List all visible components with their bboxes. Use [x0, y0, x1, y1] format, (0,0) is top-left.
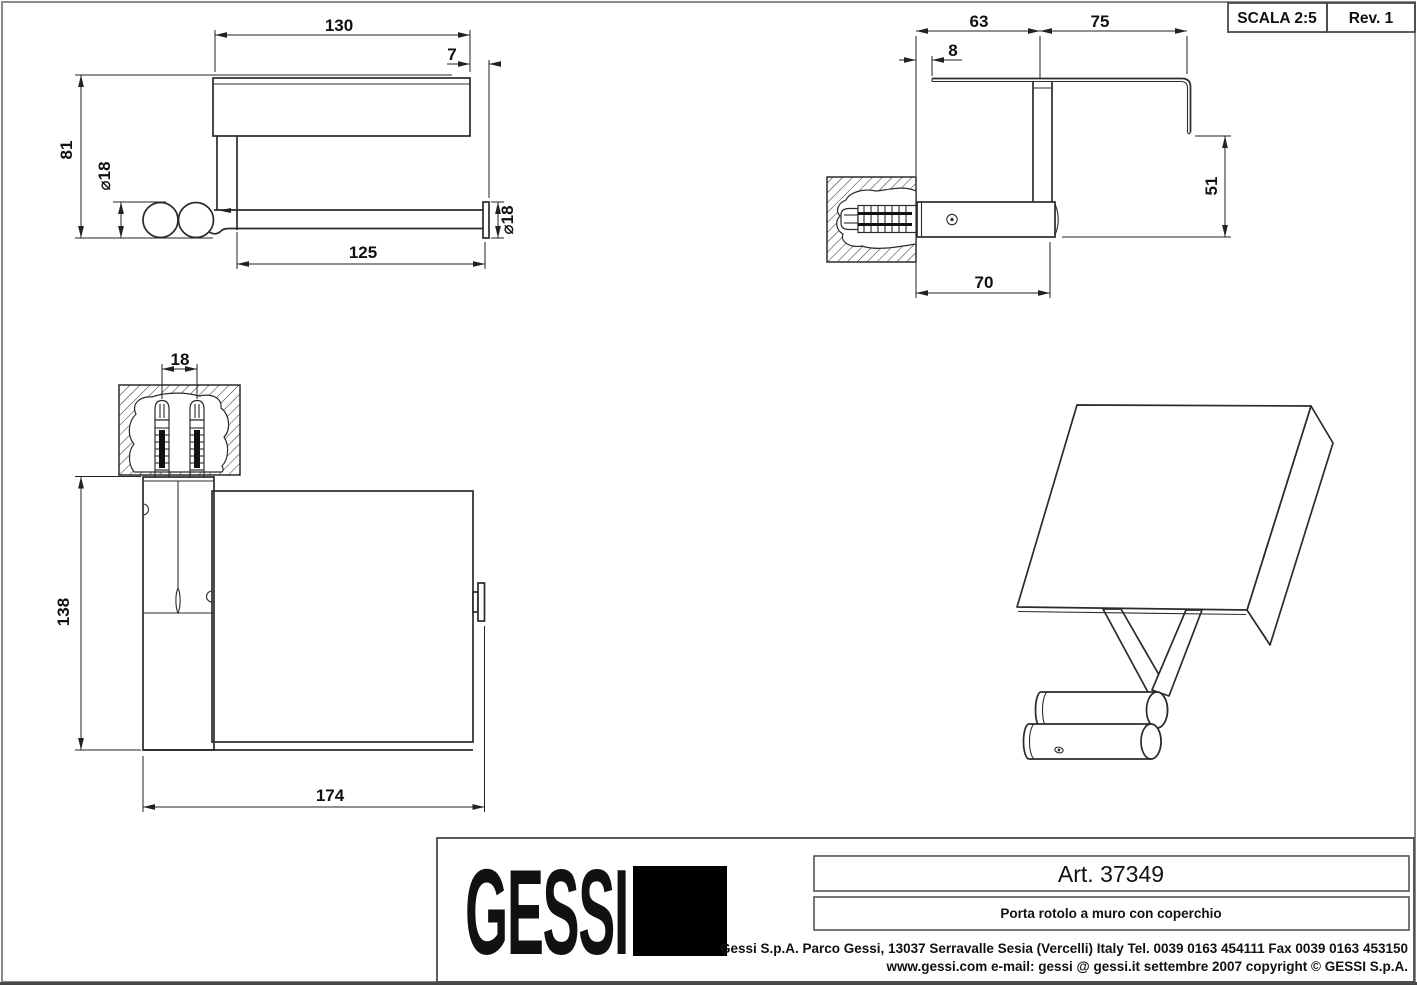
technical-drawing-canvas: SCALA 2:5 Rev. 1 13 — [0, 0, 1417, 986]
drawing-sheet: SCALA 2:5 Rev. 1 13 — [0, 0, 1417, 986]
svg-text:⌀18: ⌀18 — [95, 161, 114, 190]
wall-section — [827, 177, 916, 262]
svg-text:138: 138 — [54, 598, 73, 626]
svg-text:174: 174 — [316, 786, 345, 805]
iso-leg-right — [1152, 610, 1202, 696]
plan-view: 18 138 174 — [54, 350, 485, 812]
rev-label: Rev. 1 — [1349, 10, 1394, 27]
mount-cylinder — [917, 202, 1058, 237]
dimension-wall-to-post: 63 — [916, 12, 1040, 176]
iso-lower-cylinder — [1024, 724, 1162, 759]
product-description: Porta rotolo a muro con coperchio — [1000, 906, 1221, 921]
svg-text:51: 51 — [1202, 177, 1221, 196]
dimension-arm-length: 70 — [916, 242, 1050, 298]
dimension-wall-clearance: 8 — [899, 41, 962, 76]
wall-anchor-right — [190, 401, 204, 479]
lid-profile — [932, 79, 1191, 134]
dimension-overall-width: 174 — [143, 626, 485, 812]
dimension-lid-width: 130 — [215, 16, 470, 72]
wall-anchor-plug — [841, 206, 916, 233]
svg-text:63: 63 — [970, 12, 989, 31]
support-post-side — [1033, 82, 1052, 203]
dimension-end-cap-diameter: ⌀18 — [491, 202, 517, 238]
svg-text:70: 70 — [975, 273, 994, 292]
description-box: Porta rotolo a muro con coperchio — [814, 897, 1409, 930]
end-cap-disc — [483, 202, 489, 238]
svg-text:75: 75 — [1091, 12, 1110, 31]
dimension-bar-length: 125 — [237, 232, 485, 269]
gessi-logo-text: GESSI — [465, 844, 628, 980]
lid-outline — [213, 78, 470, 136]
address-line-1: Gessi S.p.A. Parco Gessi, 13037 Serraval… — [720, 941, 1408, 956]
title-block: GESSI Art. 37349 Porta rotolo a muro con… — [437, 838, 1414, 982]
dimension-flap-drop: 51 — [1062, 136, 1231, 237]
svg-text:130: 130 — [325, 16, 353, 35]
art-number-box: Art. 37349 — [814, 856, 1409, 891]
svg-text:18: 18 — [171, 350, 190, 369]
wall-cavity-plan — [129, 393, 228, 472]
svg-text:⌀18: ⌀18 — [498, 205, 517, 234]
cover-plate-plan — [143, 491, 485, 750]
side-view: 63 75 8 51 70 — [827, 12, 1231, 298]
wall-anchor-left — [155, 401, 169, 479]
iso-upper-cylinder — [1036, 692, 1168, 728]
mount-plate-plan — [143, 477, 214, 750]
support-post — [217, 136, 237, 230]
svg-text:7: 7 — [447, 45, 456, 64]
screw-slot — [176, 588, 180, 613]
gessi-logo-square — [633, 866, 727, 956]
bar-junction-tick — [219, 208, 231, 213]
svg-text:81: 81 — [57, 141, 76, 160]
dimension-lid-overhang: 7 — [447, 45, 501, 198]
svg-text:125: 125 — [349, 243, 377, 262]
wall-section-plan — [119, 385, 240, 478]
isometric-view — [1017, 405, 1333, 759]
dimension-post-to-front: 75 — [1040, 12, 1187, 74]
roll-bar — [206, 202, 489, 238]
front-view: 130 7 81 ⌀18 125 — [57, 16, 517, 269]
scale-label: SCALA 2:5 — [1237, 10, 1317, 27]
scale-rev-header: SCALA 2:5 Rev. 1 — [1228, 3, 1415, 32]
dimension-overall-height: 81 — [57, 75, 452, 238]
ball-joints — [143, 203, 214, 238]
art-number: Art. 37349 — [1058, 861, 1164, 887]
knob-disc — [478, 583, 485, 621]
address-line-2: www.gessi.com e-mail: gessi @ gessi.it s… — [885, 959, 1408, 974]
svg-text:8: 8 — [948, 41, 957, 60]
dimension-overall-depth: 138 — [54, 477, 141, 751]
